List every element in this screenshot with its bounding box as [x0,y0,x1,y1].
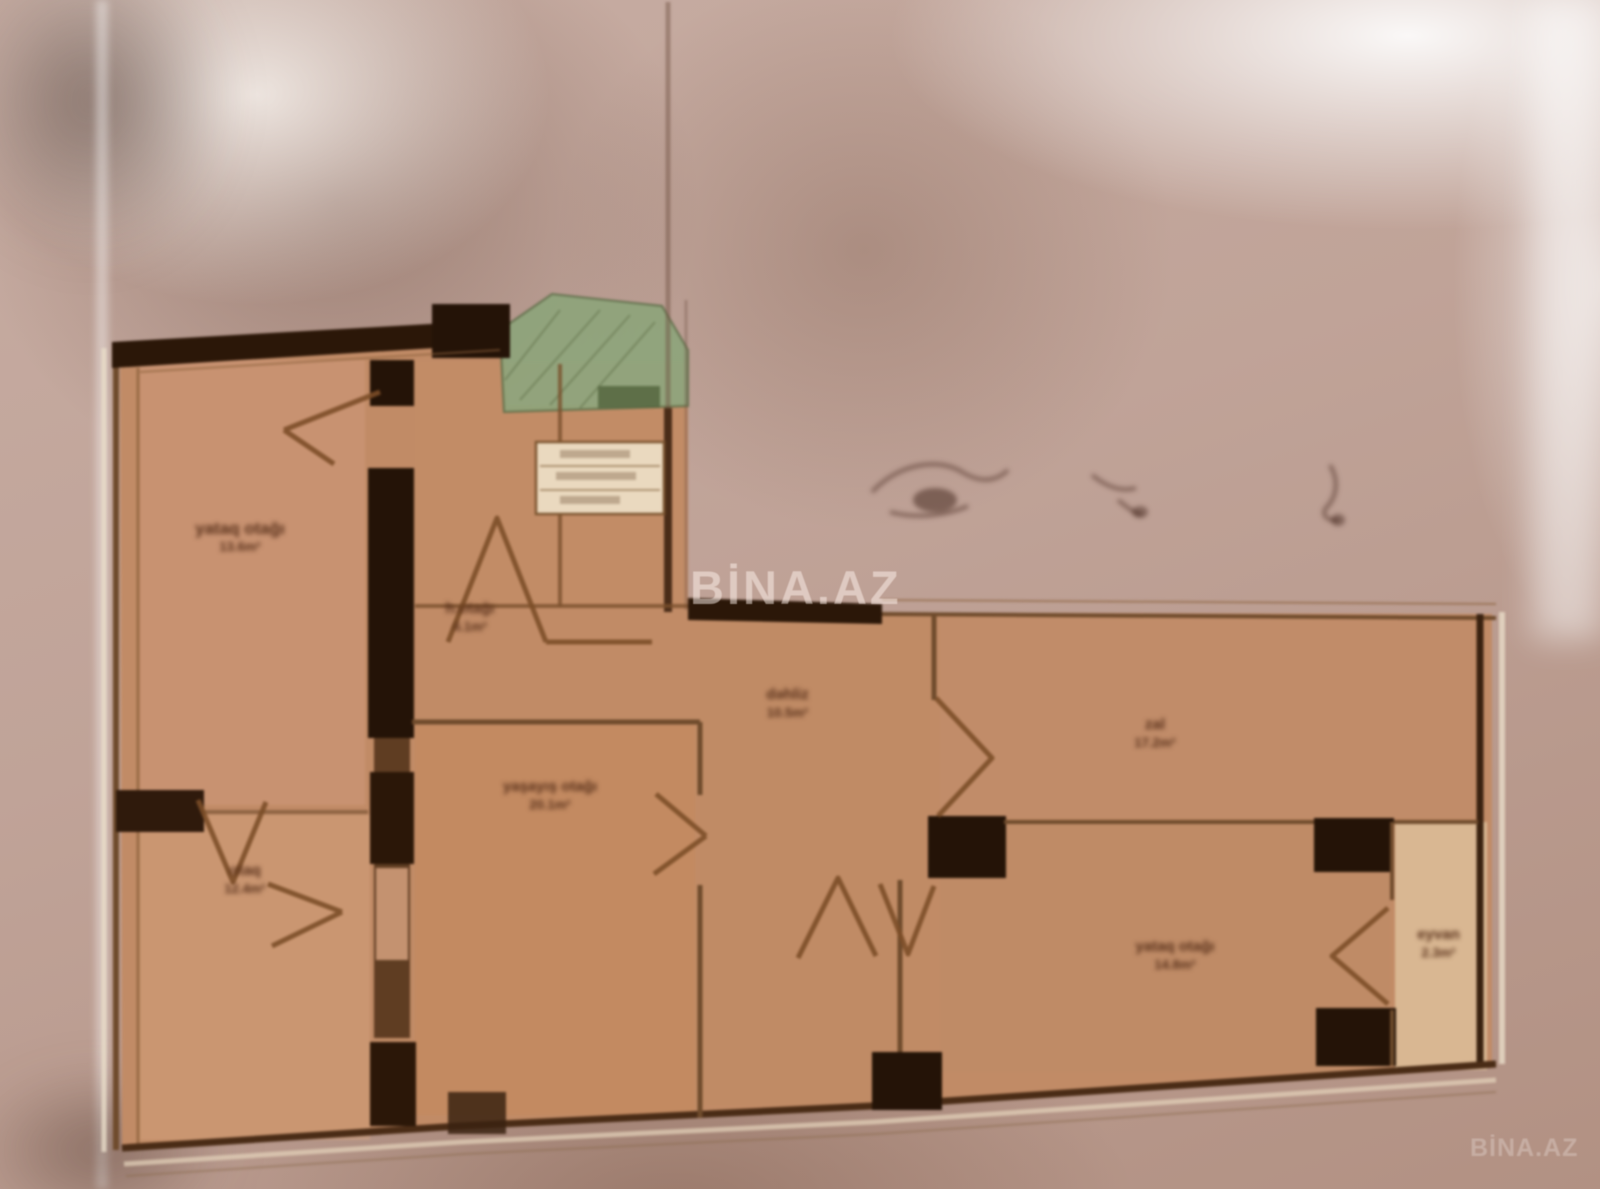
floorplan-photo: yataq otağı 13.6m² otaq 12.4m² h.otağı 4… [0,0,1600,1189]
room-area: 4.1m² [415,619,525,635]
room-name: yataq otağı [1080,938,1270,957]
room-tints [140,360,1487,1140]
room-label-hall-room: zal 17.2m² [1090,716,1220,751]
room-name: h.otağı [415,600,525,619]
room-name: eyvan [1396,926,1481,945]
room-area: 17.2m² [1090,735,1220,751]
room-name: otaq [185,862,305,881]
legend-box [536,442,664,514]
room-name: yataq otağı [155,518,325,539]
room-label-hallway: dəhliz 10.5m² [730,686,845,721]
room-label-living-room: yaşayış otağı 20.1m² [460,778,640,813]
room-label-bathroom: h.otağı 4.1m² [415,600,525,635]
pencil-scribbles [872,464,1345,526]
room-label-bedroom-top-left: yataq otağı 13.6m² [155,518,325,556]
room-area: 12.4m² [185,881,305,897]
room-name: dəhliz [730,686,845,705]
room-label-room-bottom-left: otaq 12.4m² [185,862,305,897]
balcony-green [500,294,688,412]
room-label-balcony-right: eyvan 2.3m² [1396,926,1481,961]
room-area: 14.8m² [1080,957,1270,973]
room-label-bedroom-right: yataq otağı 14.8m² [1080,938,1270,973]
room-name: yaşayış otağı [460,778,640,797]
watermark-corner: BİNA.AZ [1470,1134,1578,1163]
room-name: zal [1090,716,1220,735]
room-area: 13.6m² [155,539,325,555]
room-area: 2.3m² [1396,945,1481,961]
room-area: 20.1m² [460,797,640,813]
watermark-center: BİNA.AZ [690,560,902,615]
room-area: 10.5m² [730,705,845,721]
